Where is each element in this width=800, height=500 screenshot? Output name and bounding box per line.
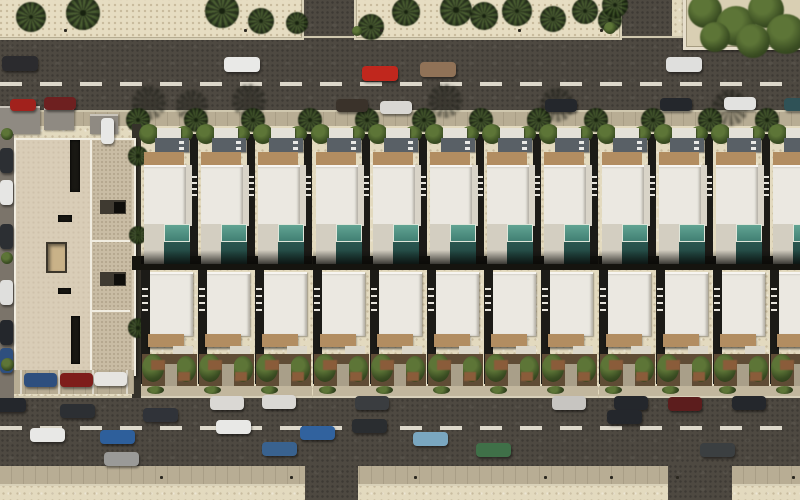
stair-step [199,288,205,290]
bollard [64,29,67,32]
stair-step [657,288,663,290]
garden-rust-bed [780,360,794,370]
shadow-band [599,250,656,264]
car [262,442,297,456]
shadow-band [770,250,800,264]
car [100,430,135,444]
garden-rust-bed [693,372,705,381]
shadow-band [255,250,312,264]
garden-path [508,364,520,388]
main-roof [201,165,243,228]
garden-path [737,364,749,388]
shadow-band [656,250,713,264]
garden-path [565,364,577,388]
skylight-dot [179,141,184,144]
skylight-dot [694,141,699,144]
garden-path [794,364,800,388]
roof-side-strip [358,165,364,226]
villa-unit-lower [484,268,541,398]
main-roof [550,272,593,336]
roof-side-strip [472,165,478,226]
garden-rust-bed [609,360,623,370]
garden-rust-bed [551,360,565,370]
sidewalk-planter [376,386,393,394]
stair-step [371,302,377,304]
shadow-band [484,250,541,264]
shadow-band [198,250,255,264]
skylight-dot [694,147,699,150]
skylight-dot [351,141,356,144]
skylight-dot [408,147,413,150]
garden-rust-bed [494,360,508,370]
front-garden [314,354,369,388]
stair-step [600,295,606,297]
main-roof [379,272,422,336]
stair-step [428,309,434,311]
stair-step [600,309,606,311]
garden-path [680,364,692,388]
sidewalk-planter [433,386,450,394]
palm-tree [358,14,384,40]
stair-step [142,302,148,304]
villa-unit-lower [770,268,800,398]
palm-tree [540,6,566,32]
villa-unit-lower [656,268,713,398]
roof-slot [58,215,72,222]
balcony-pergola [777,334,800,347]
stair-step [600,302,606,304]
stair-step [771,302,777,304]
skylight-dot [351,147,356,150]
villa-unit-upper [770,124,800,264]
main-roof [373,165,415,228]
garden-rust-bed [578,372,590,381]
swimming-pool [278,224,304,242]
pergola [258,152,298,165]
main-roof [773,165,800,228]
garden-rust-bed [750,372,762,381]
lane-divider-top [0,82,800,86]
swimming-pool [336,224,362,242]
stair-step [256,309,262,311]
roof-slot [71,316,80,364]
garden-rust-bed [265,360,279,370]
car [104,452,139,466]
stair-step [714,309,720,311]
parked-car [0,180,13,205]
skylight-dot [408,141,413,144]
garden-rust-bed [407,372,419,381]
garden-rust-bed [350,372,362,381]
parapet-line [90,310,130,312]
main-roof [608,272,651,336]
skylight-dot [179,147,184,150]
front-garden [714,354,769,388]
aerial-development-render [0,0,800,500]
stair-step [714,295,720,297]
stair-step [142,288,148,290]
bollard [290,476,293,479]
garden-path [451,364,463,388]
parked-car [545,99,577,112]
front-garden [428,354,483,388]
car [352,419,387,433]
pergola [773,152,800,165]
stair-step [542,288,548,290]
shadow-band [313,250,370,264]
stair-step [771,288,777,290]
skylight-dot [637,141,642,144]
stair-step [428,295,434,297]
skylight-dot [579,147,584,150]
roof-slot [70,140,80,192]
villa-unit-upper [255,124,312,264]
branch-road-bottom-overlay [305,464,358,500]
skylight-dot [293,147,298,150]
branch-road-top [300,0,354,40]
swimming-pool [622,224,648,242]
stair-step [256,295,262,297]
tree-canopy [700,22,730,52]
skylight-dot [465,141,470,144]
pergola [316,152,356,165]
front-garden [600,354,655,388]
parked-car [262,395,296,409]
stair-step [657,309,663,311]
pergola [716,152,756,165]
main-roof [602,165,644,228]
main-roof [722,272,765,336]
stair-step [256,288,262,290]
villa-unit-upper [713,124,770,264]
garden-rust-bed [437,360,451,370]
bush [604,22,616,34]
car [224,57,260,72]
roof-side-strip [529,165,535,226]
car [216,420,251,434]
stair-step [199,302,205,304]
parked-car [668,397,702,411]
entrance-roof [44,108,74,130]
skylight-dot [579,141,584,144]
main-roof [659,165,701,228]
stair-step [485,309,491,311]
bollard [610,476,613,479]
villa-unit-lower [599,268,656,398]
main-roof [322,272,365,336]
villa-unit-lower [313,268,370,398]
stair-step [542,309,548,311]
garden-path [623,364,635,388]
bollard [600,29,603,32]
front-garden [371,354,426,388]
villa-unit-upper [370,124,427,264]
parked-van [101,118,114,144]
front-garden [771,354,800,388]
swimming-pool [793,224,800,242]
swimming-pool [221,224,247,242]
skylight-dot [522,147,527,150]
swimming-pool [164,224,190,242]
main-roof [207,272,250,336]
parked-car [44,97,76,110]
bollard [518,29,521,32]
swimming-pool [507,224,533,242]
bollard [380,29,383,32]
shadow-band [541,250,598,264]
pergola [487,152,527,165]
main-roof [665,272,708,336]
front-garden [657,354,712,388]
stair-step [314,302,320,304]
garden-path [222,364,234,388]
main-roof [544,165,586,228]
sidewalk-planter [719,386,736,394]
parked-car [614,396,648,410]
pergola [659,152,699,165]
roof-deck-canopy [784,138,800,152]
shadow-band [370,250,427,264]
villa-unit-lower [713,268,770,398]
main-roof [258,165,300,228]
parked-car [0,280,13,305]
garden-rust-bed [636,372,648,381]
roof-vent [114,202,125,213]
main-roof [487,165,529,228]
bollard [676,476,679,479]
garden-rust-bed [208,360,222,370]
skylight-dot [236,141,241,144]
roof-side-strip [243,165,249,226]
car [300,426,335,440]
parked-car [0,398,26,412]
stair-step [142,295,148,297]
stair-step [542,302,548,304]
car [30,428,65,442]
stair-step [371,288,377,290]
pergola [201,152,241,165]
roof-side-strip [701,165,707,226]
parked-car [355,396,389,410]
parked-car [0,224,13,249]
car [666,57,702,72]
front-garden [142,354,197,388]
building-wing [90,140,132,370]
garden-rust-bed [666,360,680,370]
villa-unit-upper [427,124,484,264]
pergola [544,152,584,165]
swimming-pool [736,224,762,242]
swimming-pool [679,224,705,242]
parked-car [10,99,36,111]
courtyard [46,242,67,273]
shadow-band [427,250,484,264]
roof-side-strip [586,165,592,226]
parked-car [784,98,800,111]
villa-unit-lower [427,268,484,398]
stair-step [771,295,777,297]
front-garden [256,354,311,388]
tree-canopy [736,24,770,58]
parked-car [732,396,766,410]
stair-step [428,288,434,290]
parked-car [380,101,412,114]
car [607,410,642,424]
garden-rust-bed [723,360,737,370]
garden-rust-bed [464,372,476,381]
stair-step [657,295,663,297]
garden-rust-bed [380,360,394,370]
front-garden [542,354,597,388]
garden-path [279,364,291,388]
parked-car [94,372,127,386]
car [2,56,38,71]
roof-side-strip [758,165,764,226]
villa-unit-lower [541,268,598,398]
stair-step [371,309,377,311]
bollard [544,476,547,479]
garden-rust-bed [178,372,190,381]
stair-step [714,288,720,290]
pergola [602,152,642,165]
garden-rust-bed [292,372,304,381]
bollard [244,29,247,32]
garden-rust-bed [151,360,165,370]
stair-step [199,309,205,311]
villa-unit-lower [198,268,255,398]
roof-side-strip [415,165,421,226]
main-roof [264,272,307,336]
car [60,404,95,418]
roof-slot [58,288,71,294]
bollard [160,476,163,479]
skylight-dot [236,147,241,150]
skylight-dot [751,147,756,150]
stair-step [314,288,320,290]
palm-tree [16,2,46,32]
stair-step [714,302,720,304]
garden-path [337,364,349,388]
stair-step [542,295,548,297]
front-garden [199,354,254,388]
skylight-dot [465,147,470,150]
villa-unit-lower [141,268,198,398]
skylight-dot [637,147,642,150]
villa-unit-lower [370,268,427,398]
stall-line [20,370,22,394]
stair-step [657,302,663,304]
car [700,443,735,457]
roof-side-strip [300,165,306,226]
stair-step [314,295,320,297]
car [362,66,398,81]
parked-car [724,97,756,110]
stair-step [371,295,377,297]
villa-unit-upper [656,124,713,264]
stair-step [600,288,606,290]
main-roof [316,165,358,228]
bollard [792,476,795,479]
villa-unit-upper [313,124,370,264]
parked-car [660,98,692,111]
roof-vent [114,274,125,285]
stair-step [771,309,777,311]
palm-tree [470,2,498,30]
parked-car [0,148,13,173]
main-roof [436,272,479,336]
front-garden [485,354,540,388]
stair-step [256,302,262,304]
villa-unit-upper [141,124,198,264]
swimming-pool [564,224,590,242]
main-roof [430,165,472,228]
swimming-pool [450,224,476,242]
villa-unit-upper [541,124,598,264]
main-roof [493,272,536,336]
car [420,62,456,77]
villa-unit-upper [198,124,255,264]
parked-car [60,373,93,387]
parked-car [336,99,368,112]
parked-car [210,396,244,410]
roof-side-strip [186,165,192,226]
main-roof [150,272,193,336]
sidewalk-planter [605,386,622,394]
sidewalk-planter [319,386,336,394]
parked-car [552,396,586,410]
bush [1,358,14,371]
parked-car [24,373,57,387]
car [476,443,511,457]
villa-unit-upper [484,124,541,264]
garden-path [394,364,406,388]
main-roof [716,165,758,228]
palm-tree [248,8,274,34]
tree-canopy [766,14,800,54]
pergola [144,152,184,165]
villa-unit-lower [255,268,312,398]
sidewalk-planter [147,386,164,394]
garden-rust-bed [323,360,337,370]
bollard [414,476,417,479]
main-roof [144,165,186,228]
stair-step [485,295,491,297]
main-roof [779,272,800,336]
pergola [373,152,413,165]
skylight-dot [293,141,298,144]
stair-step [199,295,205,297]
parked-car [0,320,13,345]
skylight-dot [522,141,527,144]
stair-step [314,309,320,311]
bush [352,26,362,36]
bush [1,252,13,264]
parapet-line [90,240,130,242]
garden-rust-bed [235,372,247,381]
swimming-pool [393,224,419,242]
stair-step [428,302,434,304]
sidewalk-planter [662,386,679,394]
stair-step [485,302,491,304]
garden-rust-bed [521,372,533,381]
roof-side-strip [644,165,650,226]
villa-unit-upper [599,124,656,264]
car [413,432,448,446]
branch-road-bottom-overlay [668,464,732,500]
skylight-dot [751,141,756,144]
pergola [430,152,470,165]
stair-step [485,288,491,290]
